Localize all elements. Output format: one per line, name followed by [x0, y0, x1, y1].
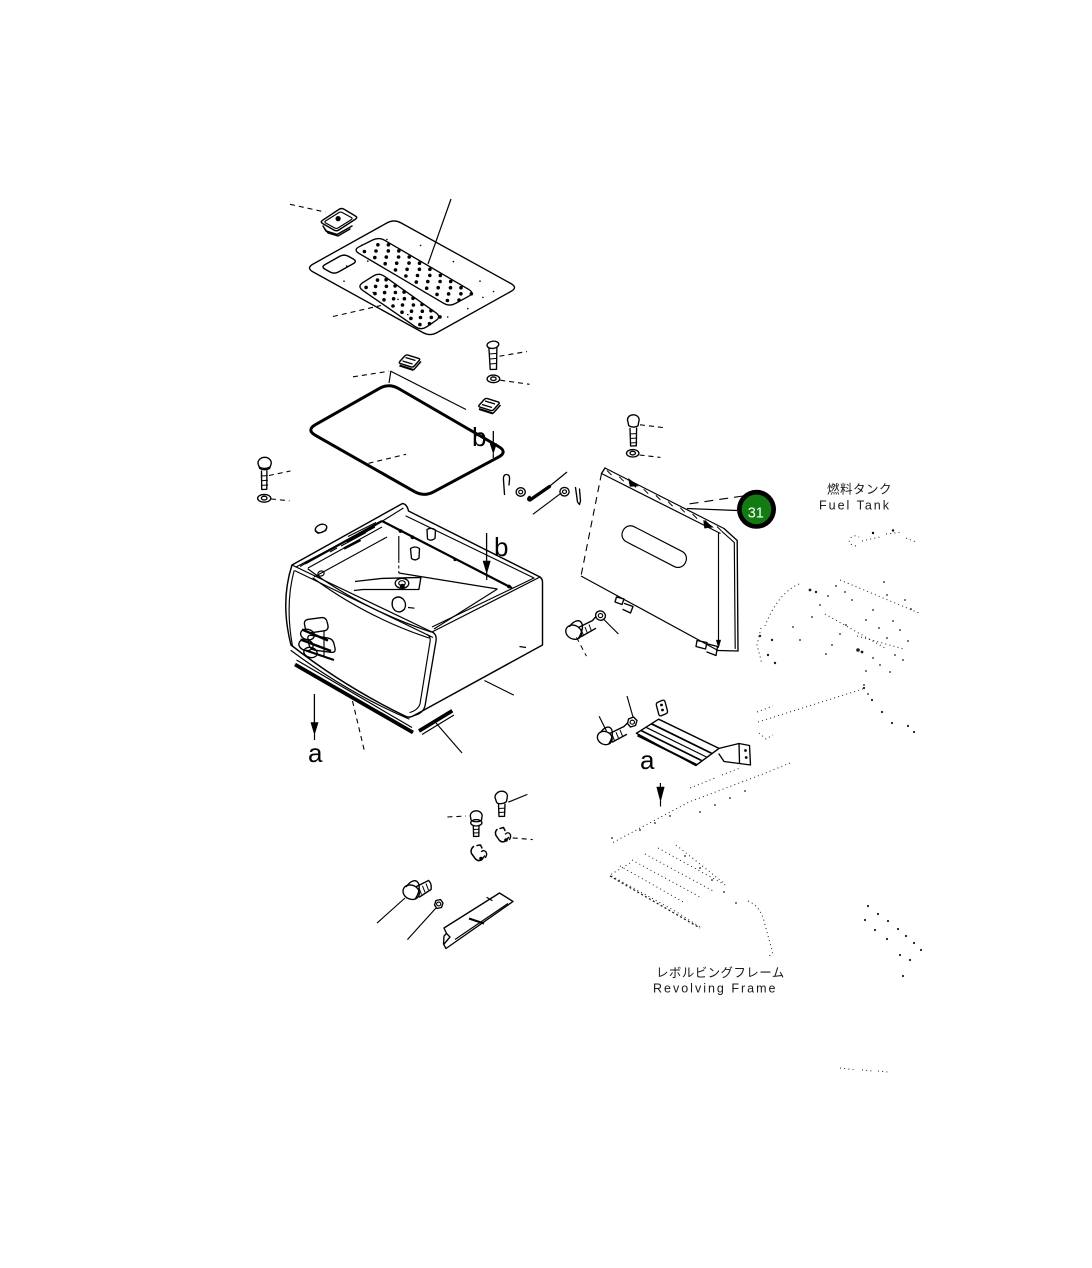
svg-text:31: 31 — [748, 506, 764, 522]
svg-text:燃料タンク: 燃料タンク — [827, 482, 892, 497]
svg-text:Fuel Tank: Fuel Tank — [819, 499, 891, 513]
svg-text:b: b — [494, 532, 508, 562]
svg-text:Revolving Frame: Revolving Frame — [653, 982, 777, 996]
svg-text:レボルビングフレーム: レボルビングフレーム — [656, 966, 785, 980]
svg-text:a: a — [308, 738, 323, 768]
svg-text:b: b — [472, 422, 486, 452]
svg-text:a: a — [640, 745, 655, 775]
